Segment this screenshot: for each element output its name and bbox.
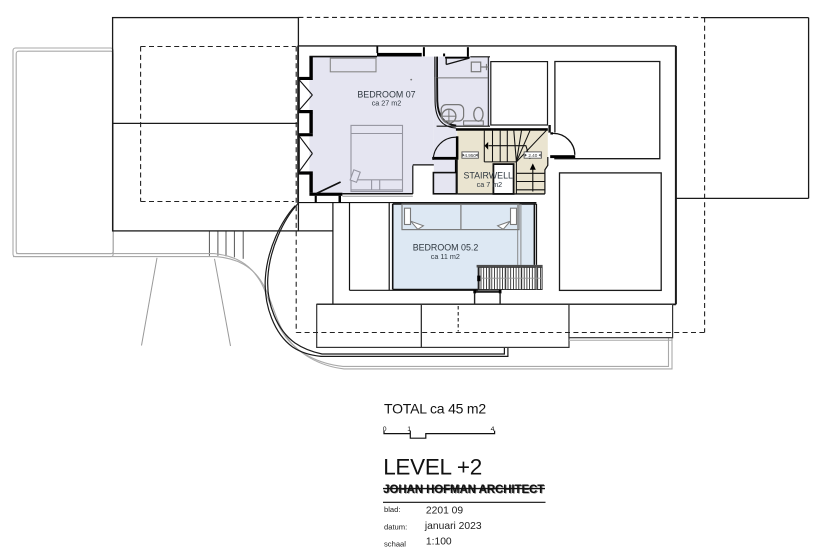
svg-text:1: 1 xyxy=(407,426,411,433)
svg-text:schaal: schaal xyxy=(384,539,406,548)
svg-text:ca 11 m2: ca 11 m2 xyxy=(431,252,460,261)
svg-text:2.40: 2.40 xyxy=(528,153,537,158)
svg-text:TOTAL ca 45 m2: TOTAL ca 45 m2 xyxy=(384,400,486,416)
svg-text:januari 2023: januari 2023 xyxy=(424,521,482,532)
svg-text:4: 4 xyxy=(491,426,495,433)
svg-text:0: 0 xyxy=(383,426,387,433)
svg-text:BEDROOM 05.2: BEDROOM 05.2 xyxy=(413,242,479,252)
svg-text:ca 7 m2: ca 7 m2 xyxy=(477,180,503,189)
svg-text:LEVEL +2: LEVEL +2 xyxy=(383,455,482,480)
svg-text:2201 09: 2201 09 xyxy=(426,505,463,516)
svg-text:1:100: 1:100 xyxy=(426,536,452,547)
svg-text:blad:: blad: xyxy=(384,505,400,514)
svg-text:4.950: 4.950 xyxy=(464,153,476,158)
svg-text:ca 27 m2: ca 27 m2 xyxy=(372,99,402,108)
svg-text:datum:: datum: xyxy=(384,523,407,532)
svg-text:JOHAN HOFMAN ARCHITECT: JOHAN HOFMAN ARCHITECT xyxy=(384,484,545,497)
